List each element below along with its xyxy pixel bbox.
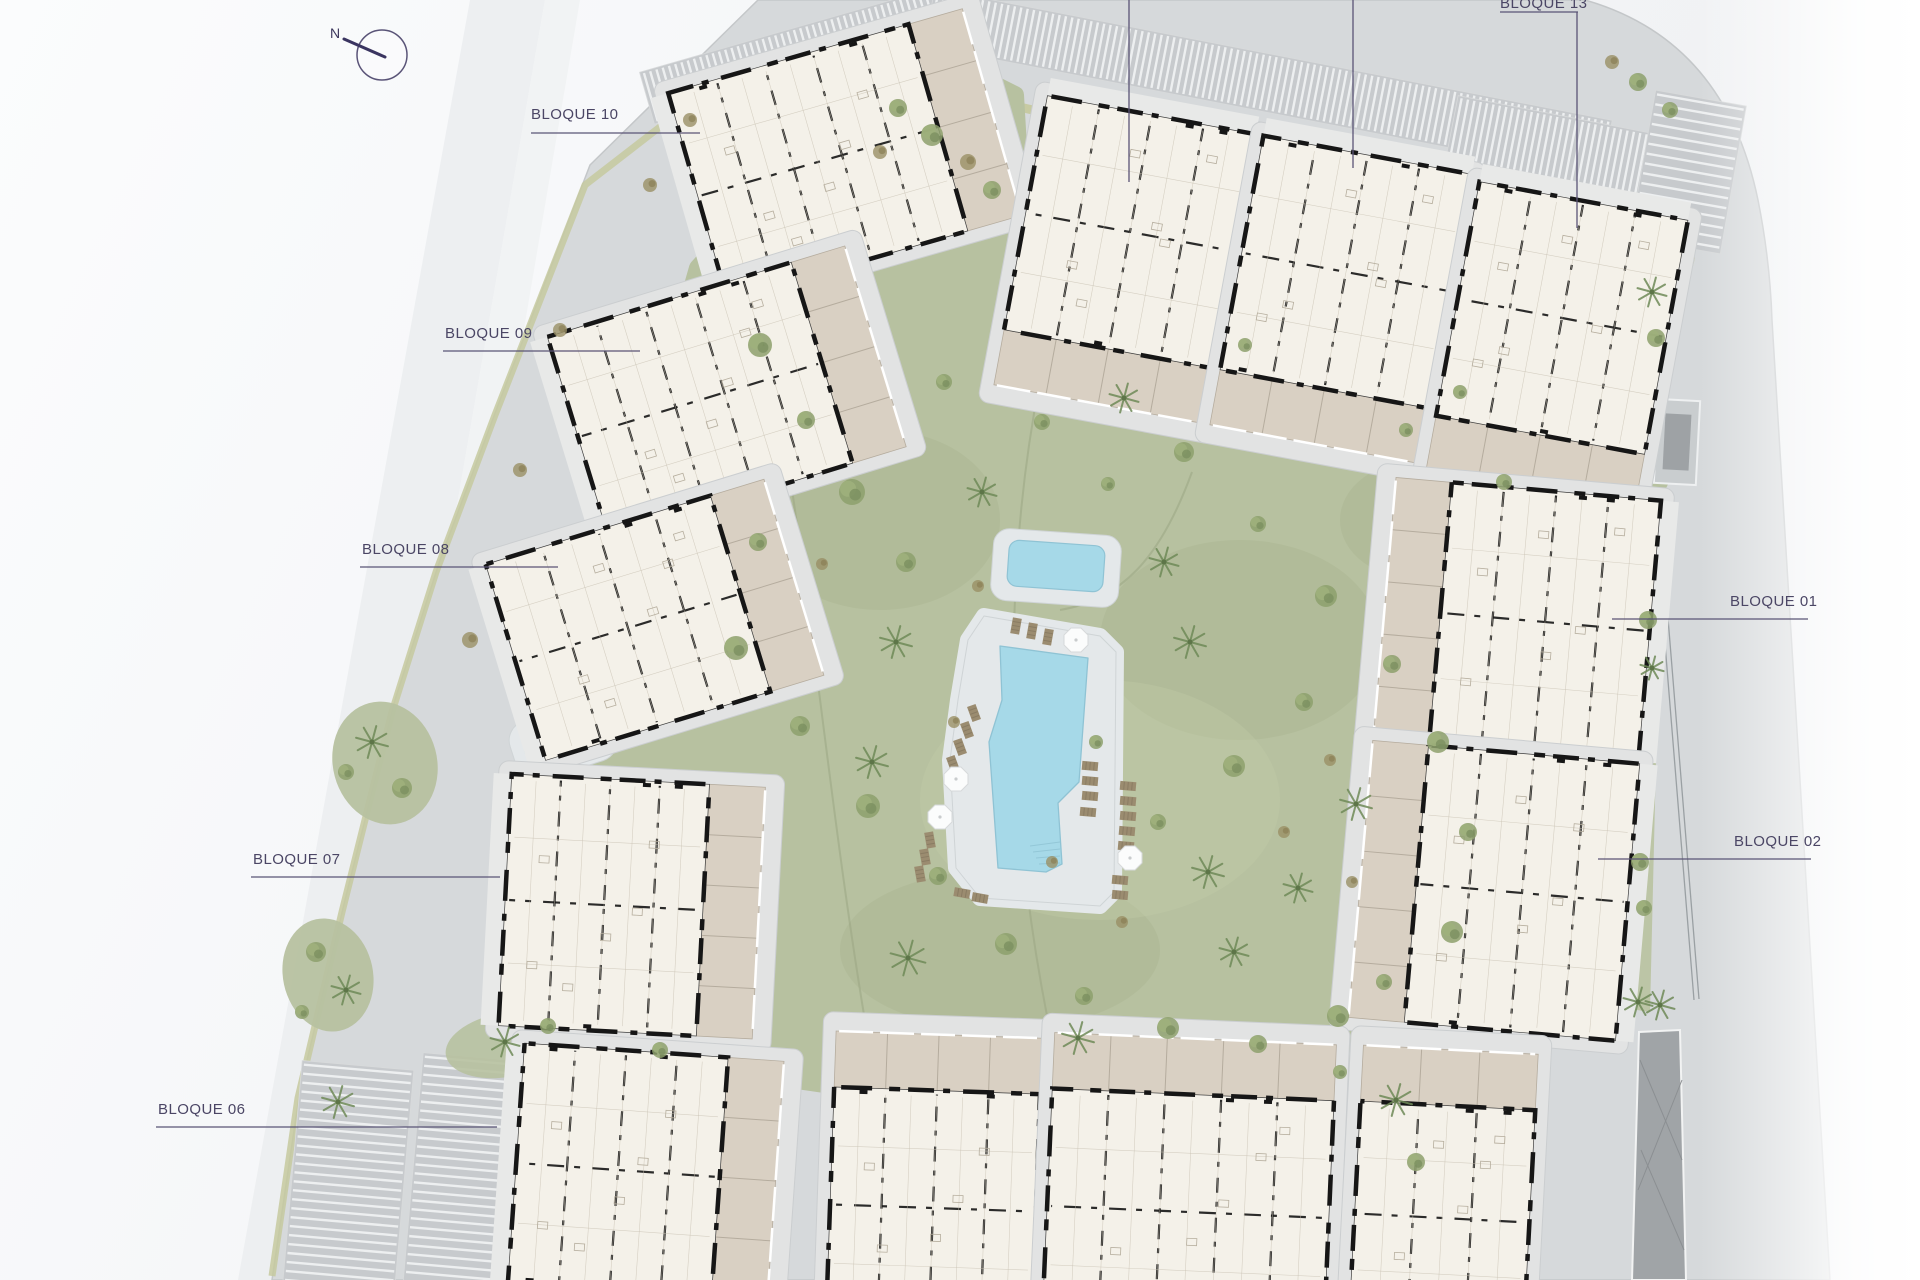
tree (748, 333, 772, 357)
shrub (1605, 55, 1619, 69)
tree (936, 374, 952, 390)
tree (540, 1018, 556, 1034)
compass-north-label: N (330, 25, 340, 41)
tree (1327, 1005, 1349, 1027)
shrub (643, 178, 657, 192)
sun-lounger (1082, 776, 1099, 786)
tree (1496, 474, 1512, 490)
tree (1427, 731, 1449, 753)
label-bloque-07: BLOQUE 07 (253, 851, 340, 868)
tree (1407, 1153, 1425, 1171)
umbrella (944, 767, 968, 791)
tree (1662, 102, 1678, 118)
tree (1629, 73, 1647, 91)
umbrella (928, 805, 952, 829)
building-bloque-south-1 (812, 1012, 1055, 1280)
tree (1150, 814, 1166, 830)
tree (921, 124, 943, 146)
tree (749, 533, 767, 551)
tree (797, 411, 815, 429)
tree (1249, 1035, 1267, 1053)
tree (1376, 974, 1392, 990)
sun-lounger (1120, 781, 1137, 791)
shrub (972, 580, 984, 592)
shrub (960, 154, 976, 170)
building-bloque-south-2 (1028, 1013, 1350, 1280)
tree (1157, 1017, 1179, 1039)
label-bloque-01: BLOQUE 01 (1730, 593, 1817, 610)
tree (1034, 414, 1050, 430)
sun-lounger (1120, 811, 1137, 821)
tree (306, 942, 326, 962)
tree (856, 794, 880, 818)
building-bloque-06 (489, 1029, 804, 1280)
shrub (1046, 856, 1058, 868)
tree (652, 1042, 668, 1058)
tree (1647, 329, 1665, 347)
tree (839, 479, 865, 505)
tree (929, 867, 947, 885)
sun-lounger (1120, 796, 1137, 806)
tree (1399, 423, 1413, 437)
tree (1238, 338, 1252, 352)
tree (1453, 385, 1467, 399)
building-bloque-02 (1328, 726, 1658, 1055)
label-bloque-10: BLOQUE 10 (531, 106, 618, 123)
tree (1631, 853, 1649, 871)
tree (1383, 655, 1401, 673)
umbrella (1064, 628, 1088, 652)
tree (392, 778, 412, 798)
tree (896, 552, 916, 572)
tree (1315, 585, 1337, 607)
umbrella (1118, 846, 1142, 870)
shrub (816, 558, 828, 570)
sun-lounger (1119, 826, 1136, 836)
sun-lounger (1112, 875, 1129, 885)
tree (1459, 823, 1477, 841)
shrub (1278, 826, 1290, 838)
shrub (513, 463, 527, 477)
tree (1441, 921, 1463, 943)
sun-lounger (1080, 807, 1097, 817)
tree (1075, 987, 1093, 1005)
tree (995, 933, 1017, 955)
tree (983, 181, 1001, 199)
compass: N (330, 17, 420, 93)
tree (1250, 516, 1266, 532)
shrub (462, 632, 478, 648)
garage-ramp (1632, 1030, 1686, 1280)
sun-lounger (1082, 791, 1099, 801)
building-bloque-south-3 (1335, 1025, 1552, 1280)
shrub (873, 145, 887, 159)
tree (790, 716, 810, 736)
label-bloque-09: BLOQUE 09 (445, 325, 532, 342)
tree (889, 99, 907, 117)
shrub (948, 716, 960, 728)
kids-pool (1007, 540, 1106, 593)
label-bloque-06: BLOQUE 06 (158, 1101, 245, 1118)
shrub (553, 323, 567, 337)
tree (1295, 693, 1313, 711)
sun-lounger (1082, 761, 1099, 771)
right-fade (1700, 0, 1920, 1280)
tree (1636, 900, 1652, 916)
label-bloque-02: BLOQUE 02 (1734, 833, 1821, 850)
tree (1101, 477, 1115, 491)
parking-rows-southwest-1 (282, 1061, 414, 1280)
tree (295, 1005, 309, 1019)
shrub (1324, 754, 1336, 766)
tree (1089, 735, 1103, 749)
tree (1639, 611, 1657, 629)
sun-lounger (1112, 890, 1129, 900)
tree (1223, 755, 1245, 777)
shrub (683, 113, 697, 127)
shrub (1346, 876, 1358, 888)
shrub (1116, 916, 1128, 928)
tree (338, 764, 354, 780)
label-bloque-08: BLOQUE 08 (362, 541, 449, 558)
tree (1174, 442, 1194, 462)
compass-north-icon (330, 17, 420, 93)
label-bloque-13: BLOQUE 13 (1500, 0, 1587, 12)
tree (1333, 1065, 1347, 1079)
site-plan-canvas (0, 0, 1920, 1280)
building-bloque-07 (480, 760, 785, 1053)
tree (724, 636, 748, 660)
